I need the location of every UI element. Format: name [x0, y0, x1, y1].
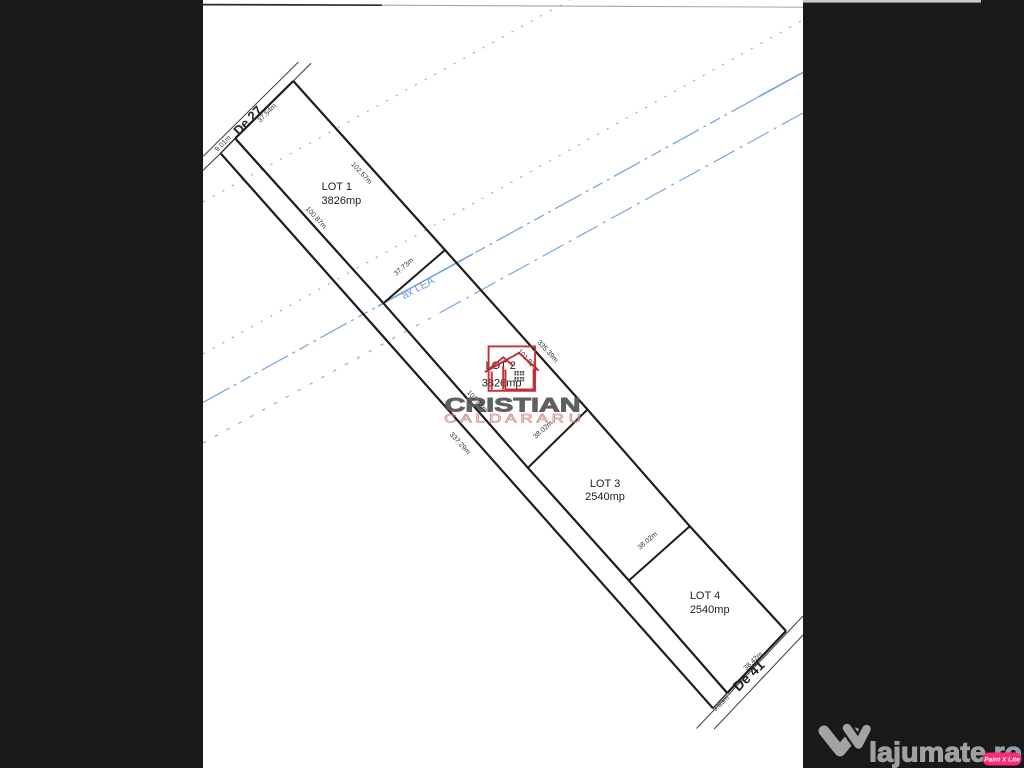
svg-text:2540mp: 2540mp: [690, 604, 730, 616]
svg-text:Paint X Lite: Paint X Lite: [984, 757, 1020, 764]
svg-text:C A L D A R A R U: C A L D A R A R U: [444, 414, 581, 426]
svg-text:lajumate: lajumate: [869, 737, 986, 768]
svg-text:LOT 1: LOT 1: [322, 181, 352, 193]
svg-text:LOT 3: LOT 3: [590, 478, 620, 490]
svg-text:2540mp: 2540mp: [585, 491, 625, 503]
svg-text:LOT 4: LOT 4: [690, 590, 720, 602]
svg-text:LOT 2: LOT 2: [486, 360, 516, 372]
svg-text:3826mp: 3826mp: [322, 195, 362, 207]
